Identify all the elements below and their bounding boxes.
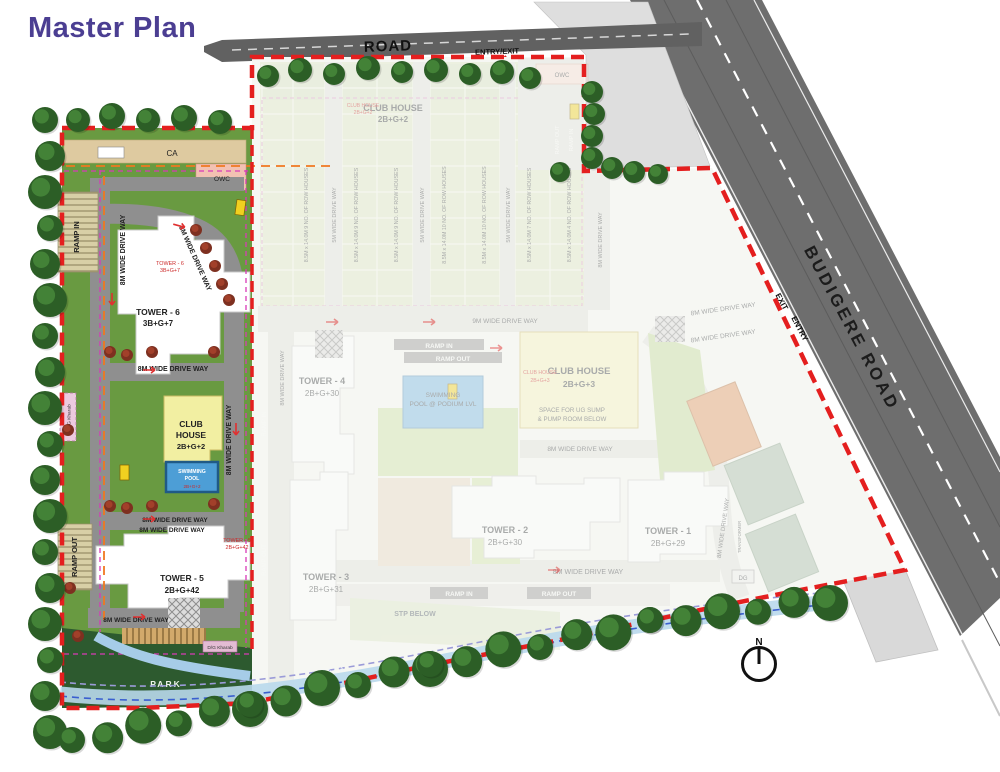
clubhouse-label: CLUB [179, 419, 203, 429]
tower2-config: 2B+G+30 [488, 538, 523, 547]
tower5-label: TOWER - 5 [160, 573, 204, 583]
ramp-in-label: RAMP IN [262, 412, 268, 437]
north-label: N [755, 637, 762, 648]
row-houses-label: 8.5M x 14.0M 4 NO. OF ROW HOUSES [567, 167, 573, 262]
dg-label: DG [739, 576, 748, 582]
tower1-config: 2B+G+29 [651, 539, 686, 548]
tower2-label: TOWER - 2 [482, 525, 528, 535]
park-label: PARK [150, 679, 181, 689]
row-houses-label: 8.5M x 14.0M 9 NO. OF ROW HOUSES [304, 167, 310, 262]
clubhouse-config: 2B+G+2 [177, 442, 205, 451]
row-houses-label: 8.5M x 14.0M 10 NO. OF ROW HOUSES [442, 166, 448, 264]
clubhouse-b-label: CLUB HOUSE [548, 366, 611, 377]
ramp-out-label: RAMP OUT [436, 356, 471, 363]
tower5-config: 2B+G+42 [165, 586, 200, 595]
owc-label: OWC [214, 176, 230, 183]
tower5-red-config: 2B+G+42 [225, 545, 248, 551]
sump-label: SPACE FOR UG SUMP [539, 407, 605, 414]
ramp-in-label: RAMP IN [445, 591, 473, 598]
ramp-out-label: RAMP OUT [555, 125, 561, 155]
ramp-in-label: RAMP IN [569, 129, 575, 152]
drive-way-label: 8M WIDE DRIVE WAY [598, 212, 604, 268]
owc-label: OWC [555, 73, 570, 79]
ramp-out-label: RAMP OUT [262, 544, 268, 576]
drive-way-label: 8M WIDE DRIVE WAY [139, 527, 205, 534]
drive-way-label: 5M WIDE DRIVE WAY [420, 187, 426, 243]
drive-way-label: 5M WIDE DRIVE WAY [506, 187, 512, 243]
row-houses-label: 8.5M x 14.0M 10 NO. OF ROW HOUSES [482, 166, 488, 264]
ca-strip [64, 140, 246, 163]
survey-parcel-south [843, 569, 938, 662]
tower3-config: 2B+G+31 [309, 585, 344, 594]
clubhouse-a-red-config: 2B+G+2 [354, 110, 373, 116]
vehicle-icon [235, 200, 246, 216]
clubhouse-a-red-label: CLUB HOUSE [347, 103, 380, 109]
north-compass-icon: N [743, 637, 776, 681]
pool-label: SWIMMING [178, 469, 206, 475]
ramp-out-label: RAMP OUT [70, 537, 79, 577]
page-title: Master Plan [28, 12, 196, 45]
drive-way-label: 8M WIDE DRIVE WAY [103, 617, 169, 624]
ramp-in-label: RAMP IN [72, 221, 81, 253]
tower4-config: 2B+G+30 [305, 389, 340, 398]
vehicle-icon [570, 104, 579, 119]
drive-way-label: 5M WIDE DRIVE WAY [332, 187, 338, 243]
tower4-label: TOWER - 4 [299, 376, 345, 386]
clubhouse-b-red-config: 2B+G+3 [530, 378, 549, 384]
tower5-red-label: TOWER - 5 [223, 538, 251, 544]
vehicle-icon [120, 465, 129, 480]
row-houses-label: 8.5M x 14.0M 7 NO. OF ROW HOUSES [527, 167, 533, 262]
tower6-config: 3B+G+7 [143, 319, 174, 328]
tower1-label: TOWER - 1 [645, 526, 691, 536]
tower6-label: TOWER - 6 [136, 307, 180, 317]
drive-way-label: 9M WIDE DRIVE WAY [472, 318, 538, 325]
ramp-out-label: RAMP OUT [542, 591, 577, 598]
sump-label2: & PUMP ROOM BELOW [538, 416, 607, 423]
drive-way-label: 8M WIDE DRIVE WAY [280, 350, 286, 406]
transformer-label: TRANSFORMER [737, 521, 742, 553]
ramp-in-label: RAMP IN [425, 343, 453, 350]
clubhouse-label2: HOUSE [176, 430, 207, 440]
legend-badge-icon [98, 147, 124, 158]
row-houses-label: 8.5M x 14.0M 9 NO. OF ROW HOUSES [394, 167, 400, 262]
tower6-red-config: 3B+G+7 [160, 268, 180, 274]
paved-crossing [168, 598, 200, 628]
podium-pool-label: SWIMMING [426, 392, 461, 399]
row-houses-label: 8.5M x 14.0M 9 NO. OF ROW HOUSES [354, 167, 360, 262]
drive-way-label: 8M WIDE DRIVE WAY [547, 446, 613, 453]
podium-pool-label2: POOL @ PODIUM LVL [410, 401, 477, 408]
master-plan-page: Master Plan BUDIGERE ROAD [0, 0, 1000, 772]
ca-label: CA [166, 149, 178, 158]
clubhouse-b-red-label: CLUB HOUSE [523, 370, 557, 376]
drive-way-label: 8M WIDE DRIVE WAY [226, 404, 233, 475]
pergola-strip [122, 628, 206, 644]
clubhouse-b-config: 2B+G+3 [563, 379, 595, 389]
tower3-label: TOWER - 3 [303, 572, 349, 582]
tower6-red-label: TOWER - 6 [156, 261, 184, 267]
pool-red-config: 2B+G+2 [183, 484, 201, 489]
dg-kharab-label2: D/G Kharab [207, 645, 233, 651]
master-plan-map: BUDIGERE ROAD EXIT ENTRY ROAD ENTRY/EXIT [0, 0, 1000, 772]
stp-label: STP BELOW [394, 611, 436, 618]
clubhouse-a-config: 2B+G+2 [378, 115, 409, 124]
pool-label2: POOL [185, 476, 201, 482]
drive-way-label: 8M WIDE DRIVE WAY [120, 214, 127, 285]
top-road-label: ROAD [364, 37, 413, 56]
drive-way-label: 8M WIDE DRIVE WAY [553, 569, 624, 576]
